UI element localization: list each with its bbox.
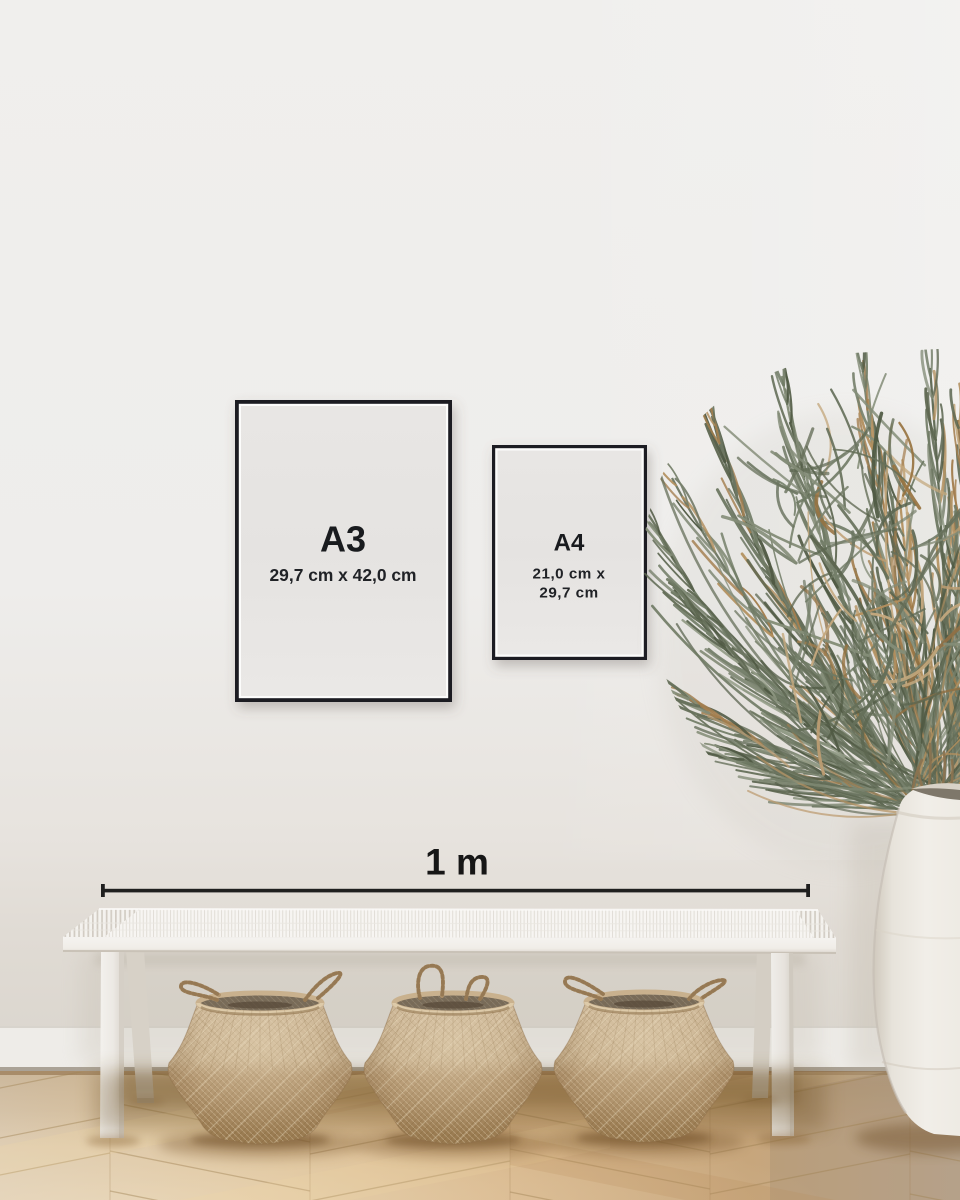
svg-text:A3: A3 [320,519,366,560]
svg-text:1 m: 1 m [425,842,489,883]
svg-text:21,0 cm x: 21,0 cm x [533,566,606,583]
svg-text:A4: A4 [554,530,585,557]
svg-text:29,7 cm x 42,0 cm: 29,7 cm x 42,0 cm [270,565,417,585]
svg-text:29,7 cm: 29,7 cm [539,585,598,602]
